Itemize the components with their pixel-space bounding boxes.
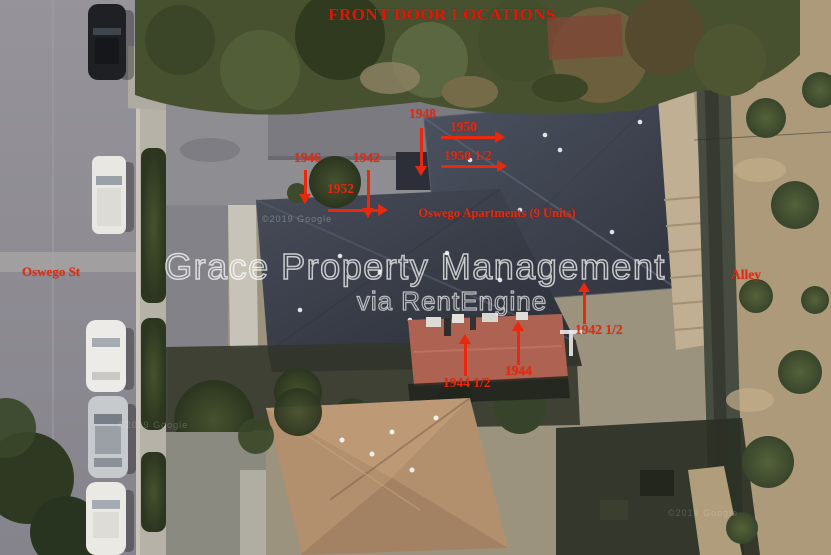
arrow-1952: [328, 204, 388, 216]
arrow-1944-half: [459, 334, 471, 376]
unit-label-1942-half: 1942 1/2: [575, 322, 623, 338]
watermark-company: Grace Property Management: [164, 246, 666, 288]
unit-label-1948: 1948: [409, 106, 436, 122]
unit-label-1946: 1946: [294, 150, 321, 166]
unit-label-1944: 1944: [505, 363, 532, 379]
unit-label-1952: 1952: [327, 181, 354, 197]
annotated-aerial-map: ©2019 Google ©2019 Google ©2019 Google G…: [0, 0, 831, 555]
unit-label-1944-half: 1944 1/2: [443, 375, 491, 391]
building-label: Oswego Apartments (9 Units): [418, 206, 575, 221]
arrow-1946: [299, 170, 311, 204]
map-attribution: ©2019 Google: [262, 214, 332, 224]
arrow-1942-half: [578, 282, 590, 324]
arrow-1950: [441, 131, 505, 143]
unit-label-1942: 1942: [353, 150, 380, 166]
arrow-1950-half: [441, 160, 507, 172]
map-attribution: ©2019 Google: [668, 508, 738, 518]
arrow-1948: [415, 128, 427, 176]
page-title: FRONT DOOR LOCATIONS: [328, 5, 555, 25]
alley-label: Alley: [731, 267, 761, 283]
street-label: Oswego St: [22, 264, 80, 280]
arrow-1944: [512, 321, 524, 365]
annotation-overlay: ©2019 Google ©2019 Google ©2019 Google G…: [0, 0, 831, 555]
watermark-platform: via RentEngine: [357, 286, 547, 317]
map-attribution: ©2019 Google: [118, 420, 188, 430]
